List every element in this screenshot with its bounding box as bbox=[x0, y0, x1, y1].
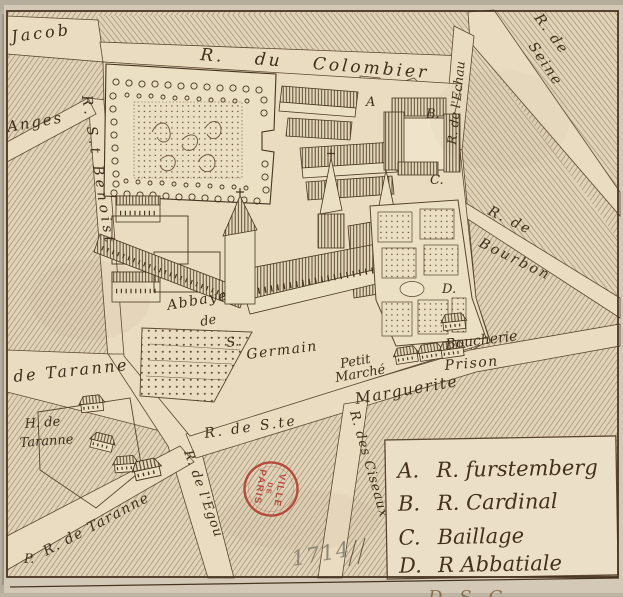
abbey-garden bbox=[104, 64, 276, 204]
legend-label-c: Baillage bbox=[436, 524, 524, 550]
marker-a: A bbox=[365, 95, 375, 110]
church-west-tower bbox=[225, 230, 255, 304]
scanned-map-page: Jacob R. du Colombier R. de Seine R. de … bbox=[0, 0, 623, 597]
legend: A. R. furstemberg B. R. Cardinal C. Bail… bbox=[385, 436, 618, 579]
label-abbaye-2: de bbox=[199, 312, 218, 330]
legend-key-a: A. bbox=[395, 458, 419, 482]
parterre bbox=[134, 102, 242, 178]
marker-d: D. bbox=[441, 282, 456, 297]
label-p-prefix: P. bbox=[23, 552, 34, 567]
legend-label-a: R. furstemberg bbox=[435, 455, 598, 482]
label-abbaye-3: S. bbox=[225, 334, 240, 351]
legend-label-d: R Abbatiale bbox=[437, 551, 562, 577]
legend-key-d: D. bbox=[398, 553, 422, 577]
engraved-map: Jacob R. du Colombier R. de Seine R. de … bbox=[0, 0, 623, 597]
marker-c: C. bbox=[430, 173, 444, 188]
label-hotel-taranne-1: H. de bbox=[23, 415, 61, 433]
legend-key-c: C. bbox=[398, 525, 420, 549]
legend-label-b: R. Cardinal bbox=[436, 489, 558, 515]
legend-key-b: B. bbox=[397, 491, 421, 515]
margin-inscription: D. S. G bbox=[427, 587, 505, 597]
